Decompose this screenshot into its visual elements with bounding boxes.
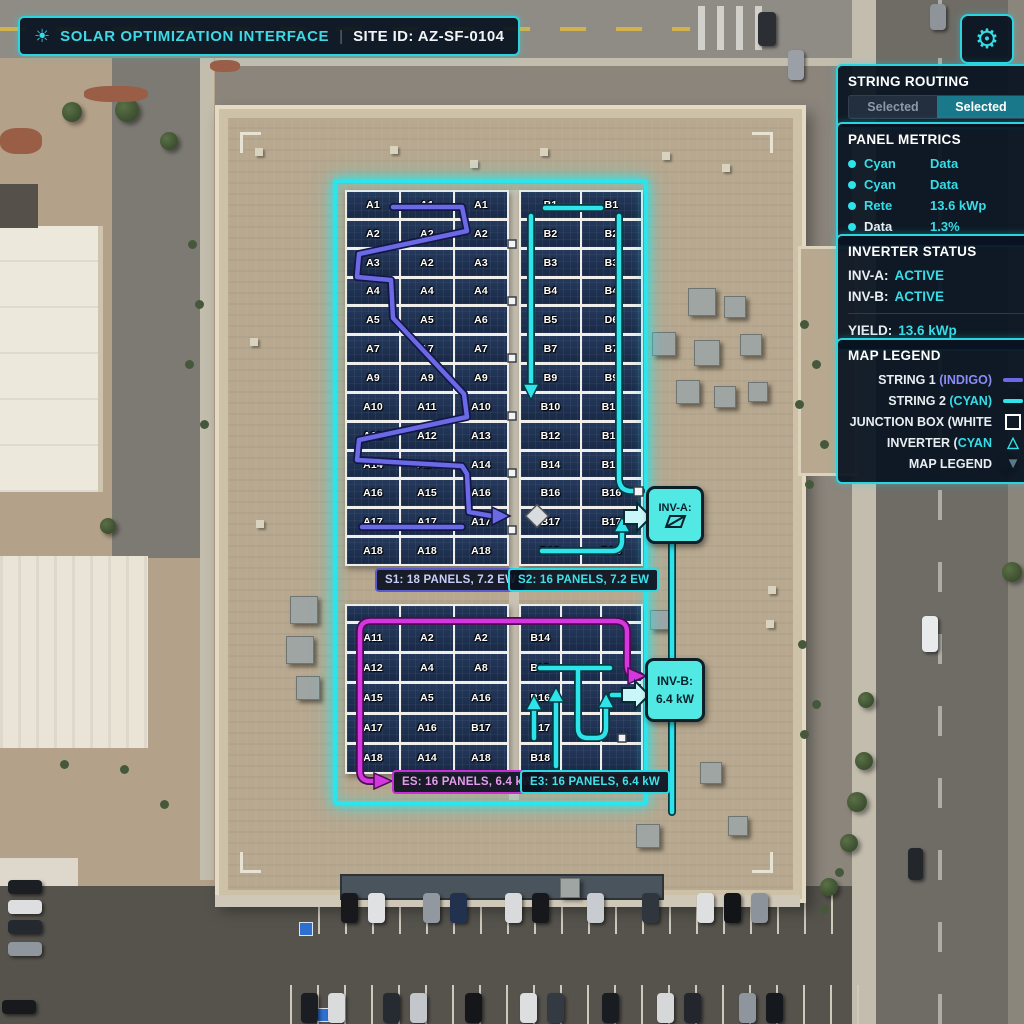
roof-vent [250,338,258,346]
metric-value: 1.3% [930,219,1024,234]
rooftop-hvac-unit [688,288,716,316]
shrub [798,640,807,649]
shrub [195,300,204,309]
roof-vent [470,160,478,168]
app-title: SOLAR OPTIMIZATION INTERFACE [60,28,329,45]
roof-vent [768,586,776,594]
shrub [60,760,69,769]
routing-toggle-left[interactable]: Selected [849,96,937,118]
parked-car [788,50,804,80]
metric-value: Data [930,156,1024,171]
inverter-b-label: INV-B: [657,672,693,690]
shrub [120,765,129,774]
junction-box-swatch [1000,414,1024,430]
metric-row: CyanData [848,174,1024,195]
rooftop-hvac-unit [714,386,736,408]
parked-car [383,993,400,1023]
panel-metrics-panel: PANEL METRICS CyanData CyanData Rete13.6… [836,122,1024,247]
parked-car [2,1000,36,1014]
parked-car [602,993,619,1023]
metric-label: Cyan [864,156,930,171]
string4-label-chip[interactable]: E3: 16 PANELS, 6.4 kW [520,770,670,794]
shrub [800,320,809,329]
parked-car [423,893,440,923]
legend-color-text: (CYAN) [949,394,992,408]
metric-value: Data [930,177,1024,192]
solar-map-stage: A1A1A1A2A2A2A3A2A3A4A4A4A5A5A6A7A7A7A9A9… [0,0,1024,1024]
metric-label: Rete [864,198,930,213]
landscaping-mulch [210,60,240,72]
legend-label: STRING 2 [888,394,949,408]
metric-row: CyanData [848,153,1024,174]
map-legend-title: MAP LEGEND [848,348,1024,363]
bullet-icon [848,223,856,231]
string-routing-panel: STRING ROUTING Selected Selected [836,64,1024,129]
shrub [820,905,829,914]
metric-label: Cyan [864,177,930,192]
panel-metrics-title: PANEL METRICS [848,132,1024,147]
shrub [800,730,809,739]
gear-icon: ⚙ [975,24,999,55]
tree [160,132,178,150]
roof-vent [722,164,730,172]
rooftop-hvac-unit [560,878,580,898]
roof-corner-mark [240,852,261,873]
metric-value: 13.6 kWp [930,198,1024,213]
array-selection-outline [333,179,648,805]
shrub [835,868,844,877]
routing-toggle-right[interactable]: Selected [937,96,1024,118]
routing-toggle: Selected Selected [848,95,1024,119]
metric-row: Rete13.6 kWp [848,195,1024,216]
string1-swatch [1000,378,1024,382]
legend-row: JUNCTION BOX (WHITE [848,411,1024,432]
neighbor-building [0,184,38,228]
rooftop-hvac-unit [296,676,320,700]
parked-car [908,848,923,880]
shrub [805,480,814,489]
rooftop-hvac-unit [290,596,318,624]
parked-car [341,893,358,923]
shrub [820,440,829,449]
legend-row: STRING 1 (INDIGO) [848,369,1024,390]
shrub [200,420,209,429]
inverter-state: ACTIVE [895,268,945,283]
parked-car [532,893,549,923]
roof-corner-mark [752,852,773,873]
sidewalk [200,58,214,880]
roof-vent [662,152,670,160]
string2-swatch [1000,399,1024,403]
yield-value: 13.6 kWp [898,323,957,338]
parked-car [301,993,318,1023]
parked-car [368,893,385,923]
parked-car [505,893,522,923]
parked-car [751,893,768,923]
inverter-a-label: INV-A: [659,502,692,514]
inverter-b-power: 6.4 kW [656,690,694,708]
inverter-label: INV-A: [848,268,889,283]
bullet-icon [848,181,856,189]
shrub [812,360,821,369]
rooftop-hvac-unit [724,296,746,318]
rooftop-hvac-unit [694,340,720,366]
header-divider: | [339,28,343,45]
map-legend-panel: MAP LEGEND STRING 1 (INDIGO) STRING 2 (C… [836,338,1024,484]
legend-triangle-icon: ▼ [1000,456,1024,471]
string-routing-title: STRING ROUTING [848,74,1024,89]
legend-row: INVERTER (CYAN △ [848,432,1024,453]
inverter-label: INV-B: [848,289,889,304]
tree [1002,562,1022,582]
rooftop-hvac-unit [676,380,700,404]
rooftop-hvac-unit [286,636,314,664]
rooftop-hvac-unit [652,332,676,356]
parked-car [758,12,776,46]
roof-corner-mark [752,132,773,153]
inverter-swatch-triangle-icon: △ [1000,435,1024,450]
parked-car [410,993,427,1023]
inverter-state: ACTIVE [895,289,945,304]
legend-label: STRING 1 [878,373,939,387]
neighbor-building [0,556,148,748]
metric-label: Data [864,219,930,234]
tree [840,834,858,852]
parked-car [930,4,946,30]
parked-car [739,993,756,1023]
legend-color-text: (INDIGO) [939,373,992,387]
parked-car [657,993,674,1023]
shrub [185,360,194,369]
parked-car [684,993,701,1023]
tree [100,518,116,534]
inverter-row: INV-A:ACTIVE [848,265,1024,286]
shrub [795,400,804,409]
string1-label-chip[interactable]: S1: 18 PANELS, 7.2 EW [375,568,526,592]
shrub [160,800,169,809]
parked-car [547,993,564,1023]
parked-car [520,993,537,1023]
inverter-status-panel: INVERTER STATUS INV-A:ACTIVE INV-B:ACTIV… [836,234,1024,351]
handicap-marking [299,922,313,936]
rooftop-hvac-unit [748,382,768,402]
landscaping-mulch [0,128,42,154]
parked-car [587,893,604,923]
rooftop-hvac-unit [650,610,670,630]
roof-vent [390,146,398,154]
tree [847,792,867,812]
tree [858,692,874,708]
roof-vent [540,148,548,156]
rooftop-hvac-unit [700,762,722,784]
parked-car [922,616,938,652]
legend-label: INVERTER ( [887,436,958,450]
parked-car [642,893,659,923]
inverter-b-marker[interactable]: INV-B: 6.4 kW [645,658,705,722]
tree [820,878,838,896]
parked-car [465,993,482,1023]
roof-vent [256,520,264,528]
settings-button[interactable]: ⚙ [960,14,1014,64]
tree [62,102,82,122]
bullet-icon [848,160,856,168]
app-header: ☀ SOLAR OPTIMIZATION INTERFACE | SITE ID… [18,16,520,56]
legend-label: JUNCTION BOX (WHITE [850,415,992,429]
roof-vent [255,148,263,156]
neighbor-building [0,226,103,492]
legend-row: MAP LEGEND ▼ [848,453,1024,474]
parked-car [328,993,345,1023]
solar-panel-icon [662,514,688,529]
parked-car [724,893,741,923]
rooftop-hvac-unit [636,824,660,848]
roof-vent [766,620,774,628]
rooftop-hvac-unit [728,816,748,836]
inverter-status-title: INVERTER STATUS [848,244,1024,259]
inverter-row: INV-B:ACTIVE [848,286,1024,307]
crosswalk [698,6,766,50]
entrance-awning [340,874,664,900]
site-id: SITE ID: AZ-SF-0104 [353,28,504,45]
divider [848,313,1024,314]
legend-label: MAP LEGEND [909,457,992,471]
landscaping-mulch [84,86,148,102]
inverter-a-marker[interactable]: INV-A: [646,486,704,544]
bullet-icon [848,202,856,210]
parked-car [8,920,42,934]
parked-car [697,893,714,923]
parked-car [766,993,783,1023]
yield-label: YIELD: [848,323,892,338]
rooftop-hvac-unit [740,334,762,356]
parked-car [8,942,42,956]
shrub [188,240,197,249]
parked-car [450,893,467,923]
string2-label-chip[interactable]: S2: 16 PANELS, 7.2 EW [508,568,659,592]
parked-car [8,900,42,914]
legend-color-text: CYAN [958,436,992,450]
legend-row: STRING 2 (CYAN) [848,390,1024,411]
tree [855,752,873,770]
parked-car [8,880,42,894]
shrub [812,700,821,709]
sun-icon: ☀ [34,26,50,47]
